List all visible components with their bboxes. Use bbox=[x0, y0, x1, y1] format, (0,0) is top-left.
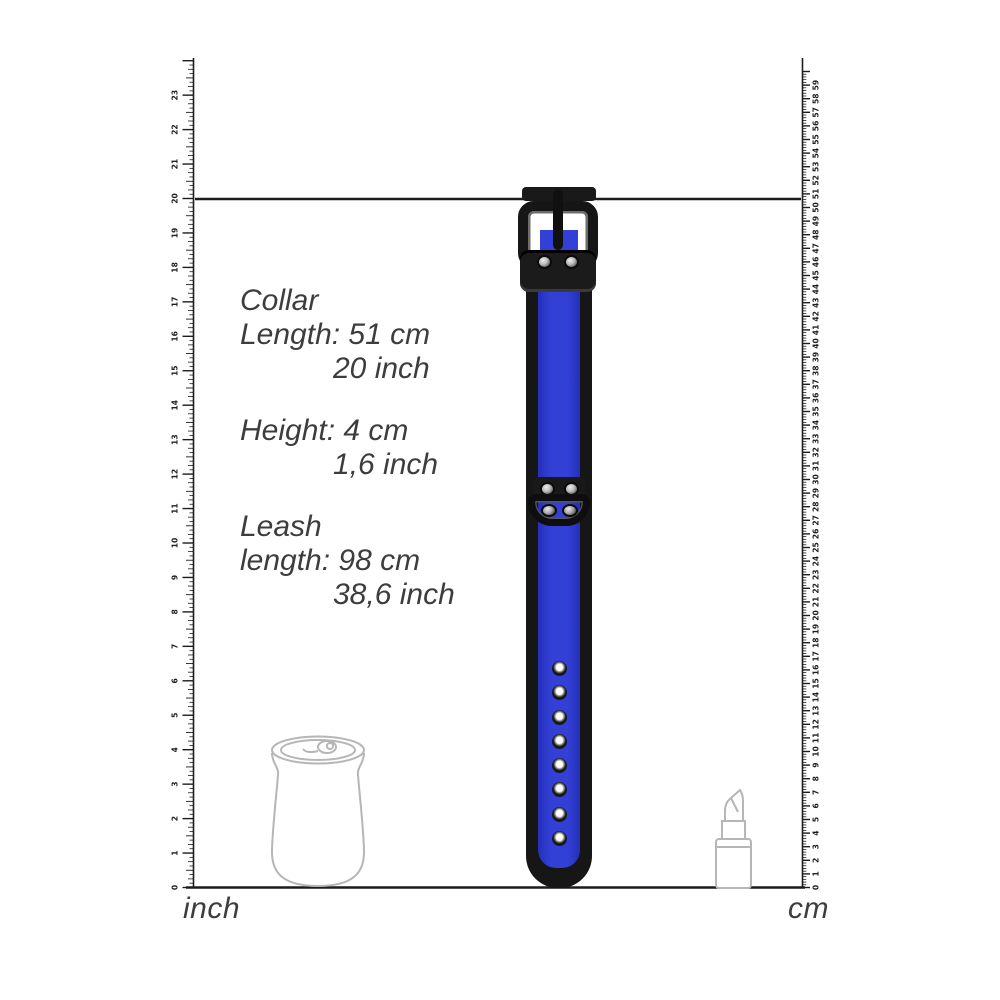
spec-collar-imperial: 20 inch bbox=[240, 352, 455, 386]
collar-hole bbox=[552, 831, 567, 846]
spec-collar-title: Collar bbox=[240, 284, 455, 318]
strap-keeper bbox=[520, 250, 596, 292]
spec-leash: Leash length: 98 cm 38,6 inch bbox=[240, 510, 455, 612]
lipstick-icon bbox=[700, 780, 775, 895]
rivet bbox=[562, 504, 578, 517]
rivet bbox=[537, 255, 552, 269]
rivet bbox=[564, 255, 579, 269]
collar-hole bbox=[552, 710, 567, 725]
can-body bbox=[272, 753, 364, 886]
collar-hole bbox=[552, 782, 567, 797]
spec-leash-title: Leash bbox=[240, 510, 455, 544]
spec-height-imperial: 1,6 inch bbox=[240, 448, 455, 482]
spec-height: Height: 4 cm 1,6 inch bbox=[240, 414, 455, 482]
dimension-specs: Collar Length: 51 cm 20 inch Height: 4 c… bbox=[240, 284, 455, 640]
collar-hole bbox=[552, 734, 567, 749]
collar-size-chart: 01234567891011121314151617181920212223 0… bbox=[0, 0, 1000, 1000]
soda-can-icon bbox=[255, 725, 385, 900]
collar-illustration bbox=[0, 0, 1000, 1000]
collar-strap-blue-stripe bbox=[538, 285, 580, 868]
spec-collar: Collar Length: 51 cm 20 inch bbox=[240, 284, 455, 386]
collar-hole bbox=[552, 807, 567, 822]
lipstick-collar bbox=[722, 821, 745, 839]
cm-label: cm bbox=[788, 892, 829, 926]
inch-label: inch bbox=[183, 892, 240, 926]
collar-hole bbox=[552, 685, 567, 700]
collar-hole bbox=[552, 758, 567, 773]
collar-hole bbox=[552, 661, 567, 676]
spec-leash-metric: length: 98 cm bbox=[240, 544, 455, 578]
buckle-prong bbox=[553, 190, 563, 250]
rivet bbox=[541, 504, 557, 517]
spec-collar-metric: Length: 51 cm bbox=[240, 318, 455, 352]
spec-height-metric: Height: 4 cm bbox=[240, 414, 455, 448]
spec-leash-imperial: 38,6 inch bbox=[240, 578, 455, 612]
